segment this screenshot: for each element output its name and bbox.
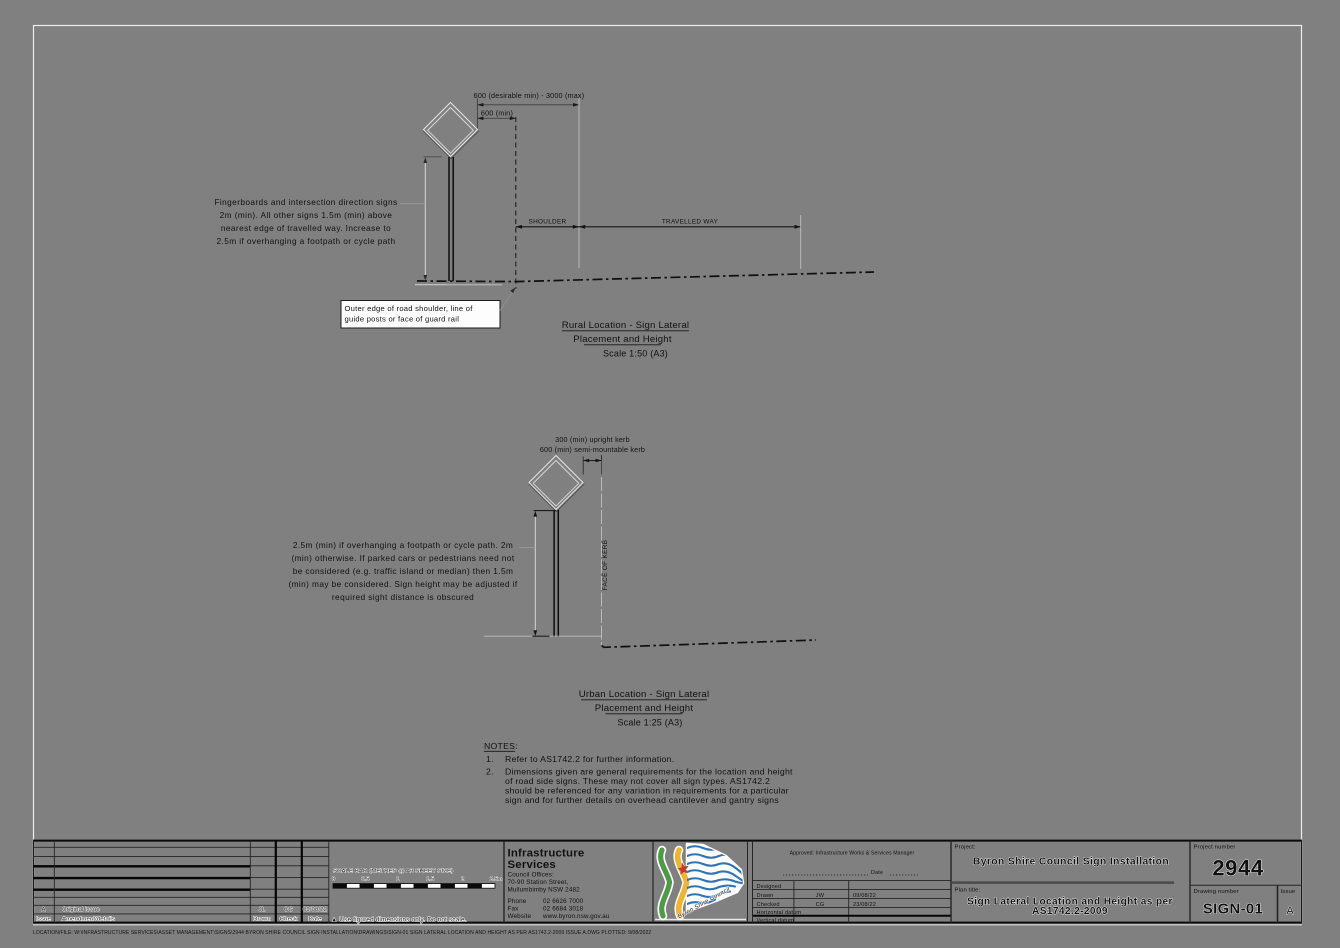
svg-text:Amendment/details: Amendment/details [62,916,115,922]
svg-text:1.5: 1.5 [426,877,434,883]
svg-text:guide posts or face of guard r: guide posts or face of guard rail [345,315,460,324]
svg-text:Scale 1:50 (A3): Scale 1:50 (A3) [603,349,668,359]
svg-text:2m (min). All other signs 1.5m: 2m (min). All other signs 1.5m (min) abo… [220,210,393,220]
svg-text:Project:: Project: [955,845,976,851]
svg-text:Rural Location - Sign Lateral: Rural Location - Sign Lateral [562,320,689,331]
svg-text:Phone: Phone [508,898,527,905]
svg-text:Checked: Checked [757,902,780,908]
svg-text:(min) otherwise. If parked car: (min) otherwise. If parked cars or pedes… [291,553,514,563]
svg-text:Date: Date [308,916,322,922]
svg-text:Outer edge of road shoulder, l: Outer edge of road shoulder, line of [345,304,474,313]
svg-text:Vertical datum: Vertical datum [757,918,795,924]
svg-text:Drawn: Drawn [757,893,774,899]
svg-text:Infrastructure: Infrastructure [508,848,585,860]
svg-text:Issue: Issue [36,916,51,922]
svg-text:Mullumbimby NSW 2482: Mullumbimby NSW 2482 [508,887,581,894]
svg-text:Council Offices:: Council Offices: [508,872,554,879]
svg-text:SCALE BAR (METRES @ A3 SHEET S: SCALE BAR (METRES @ A3 SHEET SIZE) [333,869,453,875]
svg-text:09/08/22: 09/08/22 [853,893,876,899]
svg-text:Approved: Infrastructure Works: Approved: Infrastructure Works & Service… [790,851,915,857]
svg-text:2944: 2944 [1212,856,1264,881]
svg-text:Fax: Fax [508,906,520,913]
svg-text:CG: CG [284,907,293,913]
svg-text:Drawn: Drawn [253,916,271,922]
svg-text:600 (min) semi-mountable kerb: 600 (min) semi-mountable kerb [540,445,645,454]
svg-text:Services: Services [508,859,556,871]
svg-text:A: A [41,907,45,913]
svg-text:1: 1 [396,877,399,883]
svg-text:SIGN-01: SIGN-01 [1203,902,1263,918]
svg-text:▲ Use figured dimensions only.: ▲ Use figured dimensions only. Do not sc… [331,917,467,924]
svg-text:2.: 2. [486,767,494,777]
svg-text:Date: Date [871,870,883,876]
svg-text:300 (min) upright kerb: 300 (min) upright kerb [555,435,630,444]
svg-text:Designed: Designed [757,884,782,890]
svg-text:2.5m if overhanging a footpath: 2.5m if overhanging a footpath or cycle … [216,236,395,246]
svg-text:Placement and Height: Placement and Height [595,703,694,714]
svg-text:0.5: 0.5 [362,877,370,883]
svg-text:Project number: Project number [1194,845,1236,851]
svg-text:Check: Check [280,916,297,922]
svg-text:Original issue: Original issue [62,907,100,913]
svg-text:be considered (e.g. traffic is: be considered (e.g. traffic island or me… [293,566,514,576]
svg-text:Refer to AS1742.2 for further: Refer to AS1742.2 for further informatio… [505,754,674,764]
svg-text:09/08/22: 09/08/22 [303,907,327,913]
svg-text:www.byron.nsw.gov.au: www.byron.nsw.gov.au [542,913,610,920]
svg-text:23/08/22: 23/08/22 [853,902,876,908]
svg-text:FACE OF KERB: FACE OF KERB [602,540,609,591]
svg-text:Placement and Height: Placement and Height [573,334,672,345]
svg-text:Byron Shire Council Sign Insta: Byron Shire Council Sign Installation [973,857,1169,868]
svg-text:2.5m (min) if overhanging a fo: 2.5m (min) if overhanging a footpath or … [293,540,513,550]
svg-text:CG: CG [816,902,825,908]
svg-text:SHOULDER: SHOULDER [529,219,567,226]
svg-text:AS1742.2-2009: AS1742.2-2009 [1032,906,1108,917]
svg-text:(min) may be considered. Sign: (min) may be considered. Sign height may… [288,579,517,589]
svg-text:0: 0 [332,877,335,883]
svg-text:should be referenced for any v: should be referenced for any variation i… [505,786,789,796]
svg-text:2.5m: 2.5m [490,877,503,883]
svg-text:LOCATION/FILE: W:\INFRASTRUCT: LOCATION/FILE: W:\INFRASTRUCTURE SERVICE… [33,930,651,936]
svg-text:TRAVELLED WAY: TRAVELLED WAY [662,219,719,226]
svg-text:Website: Website [508,913,532,920]
svg-text:sign and for further details o: sign and for further details on overhead… [505,795,779,805]
svg-text:70-90 Station Street,: 70-90 Station Street, [508,879,569,886]
svg-text:Horizontal datum: Horizontal datum [757,910,802,916]
svg-text:02 6626 7000: 02 6626 7000 [543,898,584,905]
svg-text:A: A [1286,905,1294,917]
svg-text:of road side signs. These may: of road side signs. These may not cover … [505,776,770,786]
svg-text:600 (min): 600 (min) [481,109,513,118]
svg-text:Urban Location - Sign Lateral: Urban Location - Sign Lateral [579,689,710,700]
svg-text:NOTES:: NOTES: [484,741,518,751]
svg-text:Dimensions given are general r: Dimensions given are general requirement… [505,767,793,777]
svg-text:Drawing number: Drawing number [1194,889,1239,895]
svg-text:JW: JW [816,893,825,899]
svg-text:1.: 1. [486,754,494,764]
svg-text:Issue: Issue [1281,889,1296,895]
svg-text:02 6684 3018: 02 6684 3018 [543,906,584,913]
svg-text:600 (desirable min) - 3000 (ma: 600 (desirable min) - 3000 (max) [474,91,585,100]
svg-text:Plan title:: Plan title: [955,888,981,894]
svg-text:required sight distance is obs: required sight distance is obscured [332,592,474,602]
svg-text:Fingerboards and intersection: Fingerboards and intersection direction … [214,197,397,207]
svg-text:2: 2 [461,877,464,883]
svg-text:JL: JL [259,907,266,913]
svg-text:Scale 1:25 (A3): Scale 1:25 (A3) [617,718,682,728]
svg-text:nearest edge of travelled way.: nearest edge of travelled way. Increase … [221,223,391,233]
